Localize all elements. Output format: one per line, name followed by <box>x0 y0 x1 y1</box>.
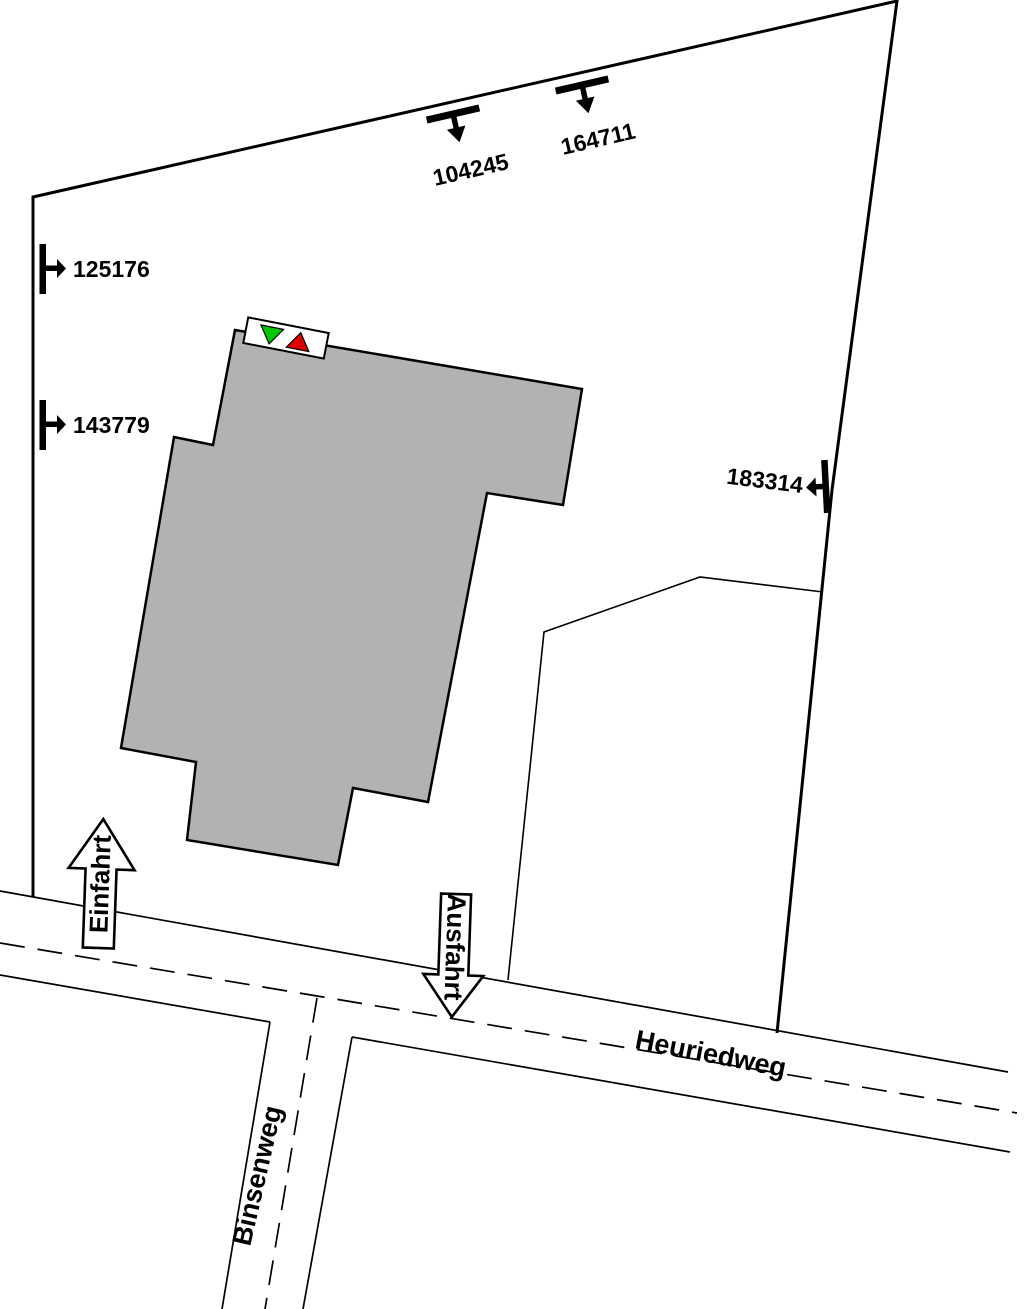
boundary-point-label: 104245 <box>430 148 511 191</box>
heuriedweg-north-curb <box>0 891 1008 1072</box>
exit-arrow-label: Ausfahrt <box>438 893 472 1001</box>
street-heuriedweg <box>0 891 1017 1152</box>
street-name-heuriedweg: Heuriedweg <box>633 1024 789 1083</box>
boundary-point-104245: 104245 <box>426 105 511 191</box>
binsenweg-east-curb <box>303 1037 352 1309</box>
t-bar-arrow-right-icon <box>40 400 67 450</box>
t-bar-arrow-right-icon <box>40 244 67 294</box>
site-plan: 104245 164711 125176 143779 <box>0 0 1024 1309</box>
boundary-point-125176: 125176 <box>40 244 150 294</box>
street-binsenweg <box>222 998 352 1309</box>
t-bar-arrow-down-icon <box>555 76 615 120</box>
building-footprint <box>121 330 582 865</box>
site-plan-canvas: 104245 164711 125176 143779 <box>0 0 1024 1309</box>
t-bar-arrow-left-icon <box>805 460 831 514</box>
t-bar-arrow-down-icon <box>426 105 486 149</box>
boundary-point-label: 143779 <box>73 412 150 438</box>
boundary-point-183314: 183314 <box>725 460 830 514</box>
entrance-arrow-label: Einfahrt <box>83 834 116 934</box>
entrance-arrow: Einfahrt <box>66 818 136 949</box>
exit-arrow: Ausfahrt <box>422 893 486 1018</box>
inner-parcel-boundary <box>508 577 823 980</box>
boundary-point-label: 164711 <box>558 118 638 160</box>
boundary-point-143779: 143779 <box>40 400 150 450</box>
boundary-point-label: 183314 <box>725 463 805 498</box>
boundary-point-label: 125176 <box>73 256 150 282</box>
boundary-point-164711: 164711 <box>555 76 638 160</box>
